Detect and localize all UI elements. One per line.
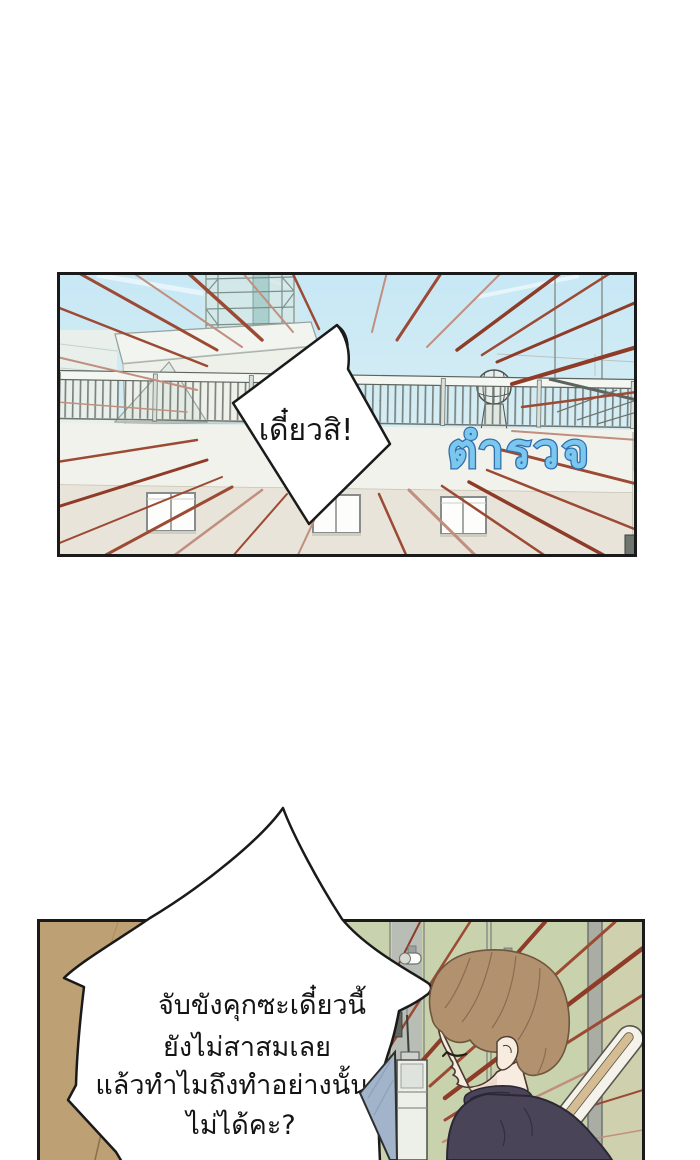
window (440, 497, 487, 537)
svg-text:ยังไม่สาสมเลย: ยังไม่สาสมเลย (163, 1032, 331, 1063)
speech-text-top: เดี๋ยวสิ! (259, 407, 354, 448)
police-sign-text: ตำรวจ (447, 424, 591, 479)
svg-text:จับขังคุกซะเดี๋ยวนี้: จับขังคุกซะเดี๋ยวนี้ (158, 985, 366, 1022)
panel-bottom-locker-room: จับขังคุกซะเดี๋ยวนี้ ยังไม่สาสมเลย แล้วท… (0, 790, 700, 1160)
pillar (588, 922, 602, 1160)
panel-top-rooftop: ตำรวจ เดี๋ยวสิ! (57, 272, 637, 557)
comic-page: ตำรวจ เดี๋ยวสิ! (0, 0, 700, 1160)
svg-text:ไม่ได้คะ?: ไม่ได้คะ? (184, 1110, 295, 1141)
svg-text:แล้วทำไมถึงทำอย่างนั้น: แล้วทำไมถึงทำอย่างนั้น (95, 1065, 368, 1101)
